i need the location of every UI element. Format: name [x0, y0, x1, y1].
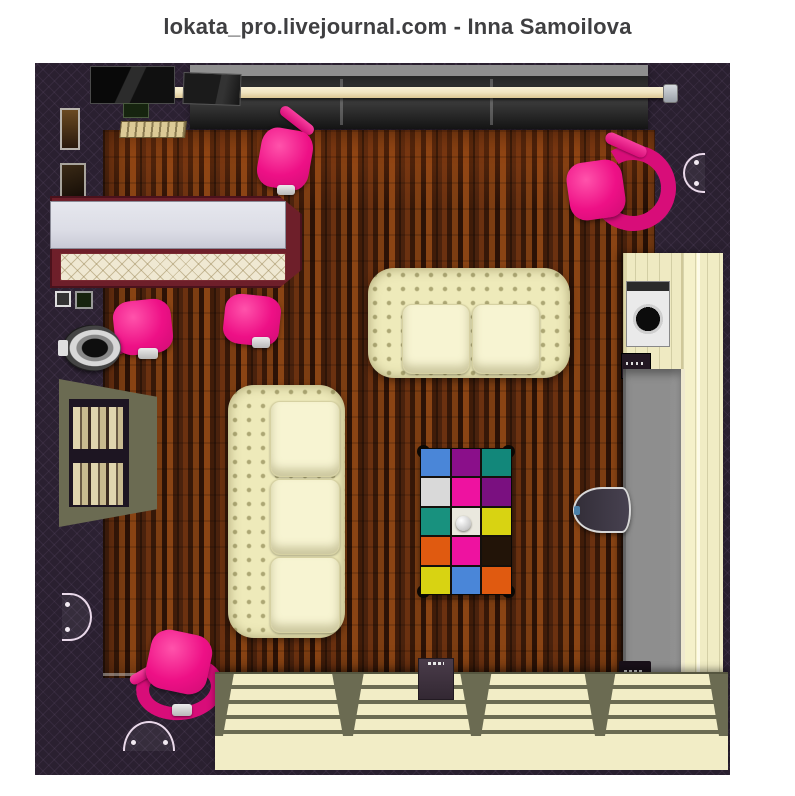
picture-frame — [75, 291, 93, 309]
rug-patch — [452, 478, 481, 505]
chair-base — [172, 704, 192, 716]
wall-cabinet — [623, 253, 723, 703]
shelf-section — [223, 674, 343, 736]
swivel-chair-pink — [255, 115, 317, 197]
rug-patch — [421, 478, 450, 505]
shelf-section — [481, 674, 595, 736]
picture-frame — [55, 291, 71, 307]
round-wall-lamp — [63, 325, 121, 371]
sconce-dot — [694, 160, 699, 165]
chair-base — [138, 348, 158, 359]
rug-patch — [452, 537, 481, 564]
sconce-dot — [694, 181, 699, 186]
radiator-grille — [119, 121, 187, 138]
page-title: lokata_pro.livejournal.com - Inna Samoil… — [0, 14, 795, 40]
rug-patch — [482, 508, 511, 535]
chair-seat — [564, 157, 628, 222]
seat-cushion — [270, 401, 340, 477]
sconce-dot — [65, 627, 70, 632]
picture-frame — [60, 108, 80, 150]
speaker-detail — [428, 662, 444, 665]
rug-patch — [421, 449, 450, 476]
seat-cushion — [472, 304, 540, 374]
wall-art-panel — [182, 72, 241, 106]
drape-pleats — [190, 65, 648, 76]
wall-sconce — [62, 593, 92, 641]
bar-top-surface — [50, 201, 286, 249]
shelf-section — [605, 674, 719, 736]
decor-ball — [456, 516, 471, 531]
floor-speaker — [418, 658, 454, 700]
sconce-dot — [131, 740, 136, 745]
wall-niche — [59, 379, 157, 527]
seat-cushion — [270, 557, 340, 633]
sofa-3-seat — [228, 385, 345, 638]
seat-cushion — [402, 304, 470, 374]
chair-base — [252, 337, 270, 348]
hifi-display — [626, 362, 644, 365]
washing-machine — [626, 281, 670, 347]
chair-detail — [574, 506, 580, 515]
window-mullion — [340, 79, 343, 125]
wall-sconce — [123, 721, 175, 751]
bar-counter — [50, 196, 302, 288]
patchwork-coffee-table — [420, 448, 512, 595]
render-image: lokata_pro.livejournal.com - Inna Samoil… — [0, 0, 795, 796]
rug-patch — [452, 449, 481, 476]
rug-patch — [421, 508, 450, 535]
loveseat-2-seat — [368, 268, 570, 378]
rug-patch — [452, 567, 481, 594]
rug-patch — [421, 537, 450, 564]
lamp-bracket — [58, 340, 68, 356]
rug-patch — [421, 567, 450, 594]
rod-end-cap — [663, 84, 678, 103]
rug-patch — [482, 478, 511, 505]
picture-frame — [123, 103, 149, 118]
seat-cushion — [270, 479, 340, 555]
room-render — [35, 63, 730, 775]
sconce-dot — [163, 740, 168, 745]
rug-patch — [482, 537, 511, 564]
chair-seat — [254, 125, 316, 193]
swivel-chair-pink — [560, 145, 680, 233]
swivel-chair-pink — [222, 295, 288, 351]
niche-books — [73, 407, 123, 449]
chair-base — [277, 185, 295, 195]
wall-sconce — [683, 153, 705, 193]
sconce-dot — [65, 602, 70, 607]
wall-art-panel — [90, 66, 175, 104]
desk-top — [623, 369, 685, 691]
tucked-oval-chair — [573, 487, 631, 533]
window-mullion — [490, 79, 493, 125]
niche-books — [73, 463, 123, 505]
rug-patch — [482, 567, 511, 594]
bar-quilted-panel — [60, 253, 286, 281]
shelving-unit — [215, 672, 728, 770]
rug-patch — [482, 449, 511, 476]
